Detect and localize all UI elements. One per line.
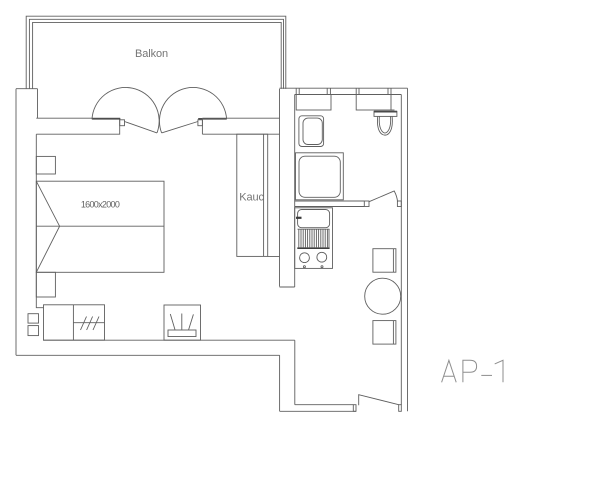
svg-text:Balkon: Balkon <box>135 48 168 60</box>
svg-text:Kauc: Kauc <box>239 192 264 204</box>
svg-text:1600x2000: 1600x2000 <box>81 199 120 209</box>
